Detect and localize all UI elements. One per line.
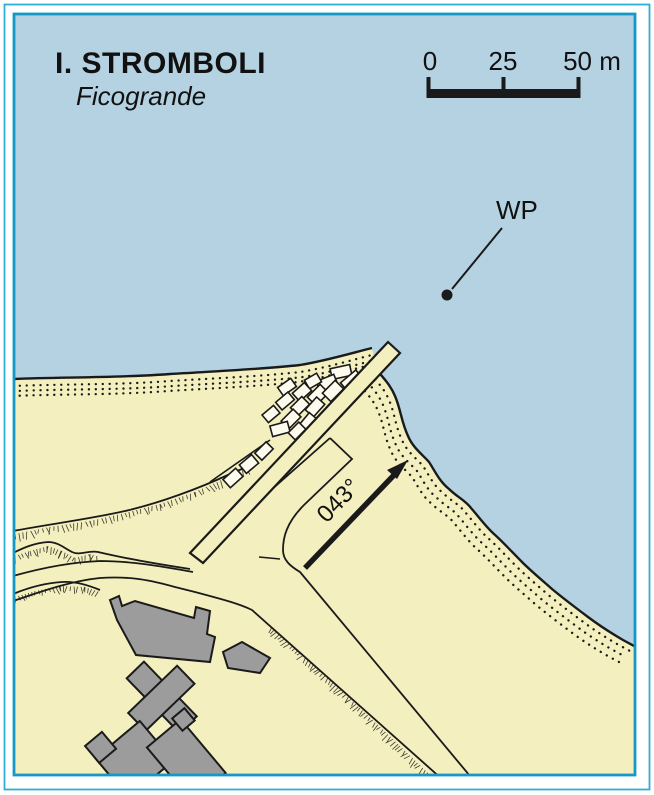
chart-subtitle: Ficogrande [76,81,206,111]
scale-label-0: 0 [423,46,437,76]
map-canvas: 043° WP I. STROMBOLI Ficogrande 0 25 50 … [0,0,654,795]
scale-label-50m: 50 m [563,46,621,76]
chart-title: I. STROMBOLI [55,47,266,80]
pilot-chart-page: 043° WP I. STROMBOLI Ficogrande 0 25 50 … [0,0,654,795]
waypoint-label: WP [496,195,538,225]
waypoint-dot [442,290,453,301]
scale-label-25: 25 [489,46,518,76]
